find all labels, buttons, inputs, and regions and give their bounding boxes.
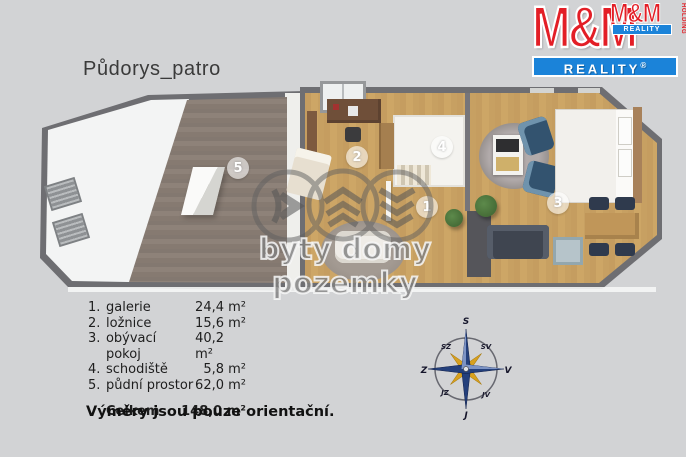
legend-area: 62,0 m² xyxy=(195,378,246,394)
legend-num: 2. xyxy=(88,316,106,332)
legend-name: galerie xyxy=(106,300,151,316)
dining-table xyxy=(585,213,639,239)
pillow xyxy=(618,149,632,177)
bookshelf xyxy=(307,111,317,155)
legend-row: 4. schodiště 5,8 m² xyxy=(88,362,246,378)
bed-headboard xyxy=(633,107,642,203)
legend-num: 5. xyxy=(88,378,106,394)
compass-label-se: JV xyxy=(480,391,491,399)
dining-chair xyxy=(589,197,609,210)
logo-reality-label: REALITY xyxy=(564,61,641,76)
compass-label-north: S xyxy=(463,317,469,327)
watermark-text: byty domy pozemky xyxy=(190,232,500,300)
legend-name: půdní prostor xyxy=(106,378,193,394)
legend-row: 1. galerie 24,4 m² xyxy=(88,300,246,316)
compass-label-south: J xyxy=(462,411,468,420)
logo-small-reality-bar: REALITY xyxy=(612,24,672,35)
legend-area: 5,8 m² xyxy=(203,362,246,378)
legend-num: 4. xyxy=(88,362,106,378)
partition-wall xyxy=(465,93,470,211)
compass-label-sw: JZ xyxy=(439,389,450,397)
pillow xyxy=(618,117,632,145)
compass-label-east: V xyxy=(505,366,512,376)
legend-num: 1. xyxy=(88,300,106,316)
coffee-table xyxy=(493,135,523,175)
legend-area: 24,4 m² xyxy=(195,300,246,316)
legend-row: 5. půdní prostor 62,0 m² xyxy=(88,378,246,394)
compass-label-west: Z xyxy=(420,366,428,376)
dining-chair xyxy=(615,197,635,210)
byty-icon xyxy=(278,192,305,220)
compass-center xyxy=(464,367,469,372)
compass-rose: S J V Z SZ SV JZ JV xyxy=(420,314,512,420)
legend-area: 15,6 m² xyxy=(195,316,246,332)
desk xyxy=(327,99,381,123)
legend-name: ložnice xyxy=(106,316,151,332)
compass-label-ne: SV xyxy=(481,343,492,351)
watermark-circle xyxy=(254,172,322,240)
room-legend: 1. galerie 24,4 m² 2. ložnice 15,6 m² 3.… xyxy=(88,300,246,420)
registered-mark: ® xyxy=(640,61,646,70)
mm-reality-logo: M&M REALITY® M&M REALITY HOLDING xyxy=(532,0,684,84)
room-number-badge-4: 4 xyxy=(431,136,453,158)
dining-chair xyxy=(589,243,609,256)
legend-name: obývací pokoj xyxy=(106,331,195,362)
compass-label-nw: SZ xyxy=(441,343,452,351)
pozemky-icon xyxy=(380,190,414,225)
legend-num: 3. xyxy=(88,331,106,362)
desk-chair xyxy=(345,127,361,142)
legend-area: 40,2 m² xyxy=(195,331,246,362)
logo-small-holding-text: HOLDING xyxy=(680,3,686,34)
domy-icon xyxy=(325,190,361,225)
legend-name: schodiště xyxy=(106,362,168,378)
byty-icon xyxy=(274,190,279,222)
dining-chair xyxy=(615,243,635,256)
glass-table xyxy=(553,237,583,265)
page-title: Půdorys_patro xyxy=(83,58,221,81)
window xyxy=(578,88,600,93)
legend-row: 2. ložnice 15,6 m² xyxy=(88,316,246,332)
potted-plant xyxy=(475,195,497,217)
disclaimer-note: Výměry jsou pouze orientační. xyxy=(86,404,335,420)
watermark-circle xyxy=(363,172,431,240)
logo-small-holding-badge: M&M REALITY HOLDING xyxy=(610,0,686,46)
room-number-badge-3: 3 xyxy=(547,192,569,214)
legend-row: 3. obývací pokoj 40,2 m² xyxy=(88,331,246,362)
wardrobe xyxy=(379,123,394,169)
logo-small-mm-text: M&M xyxy=(610,0,660,26)
window xyxy=(530,88,554,93)
floorplan-screenshot: Půdorys_patro M&M REALITY® M&M REALITY H… xyxy=(0,0,686,457)
logo-reality-bar: REALITY® xyxy=(532,56,678,77)
